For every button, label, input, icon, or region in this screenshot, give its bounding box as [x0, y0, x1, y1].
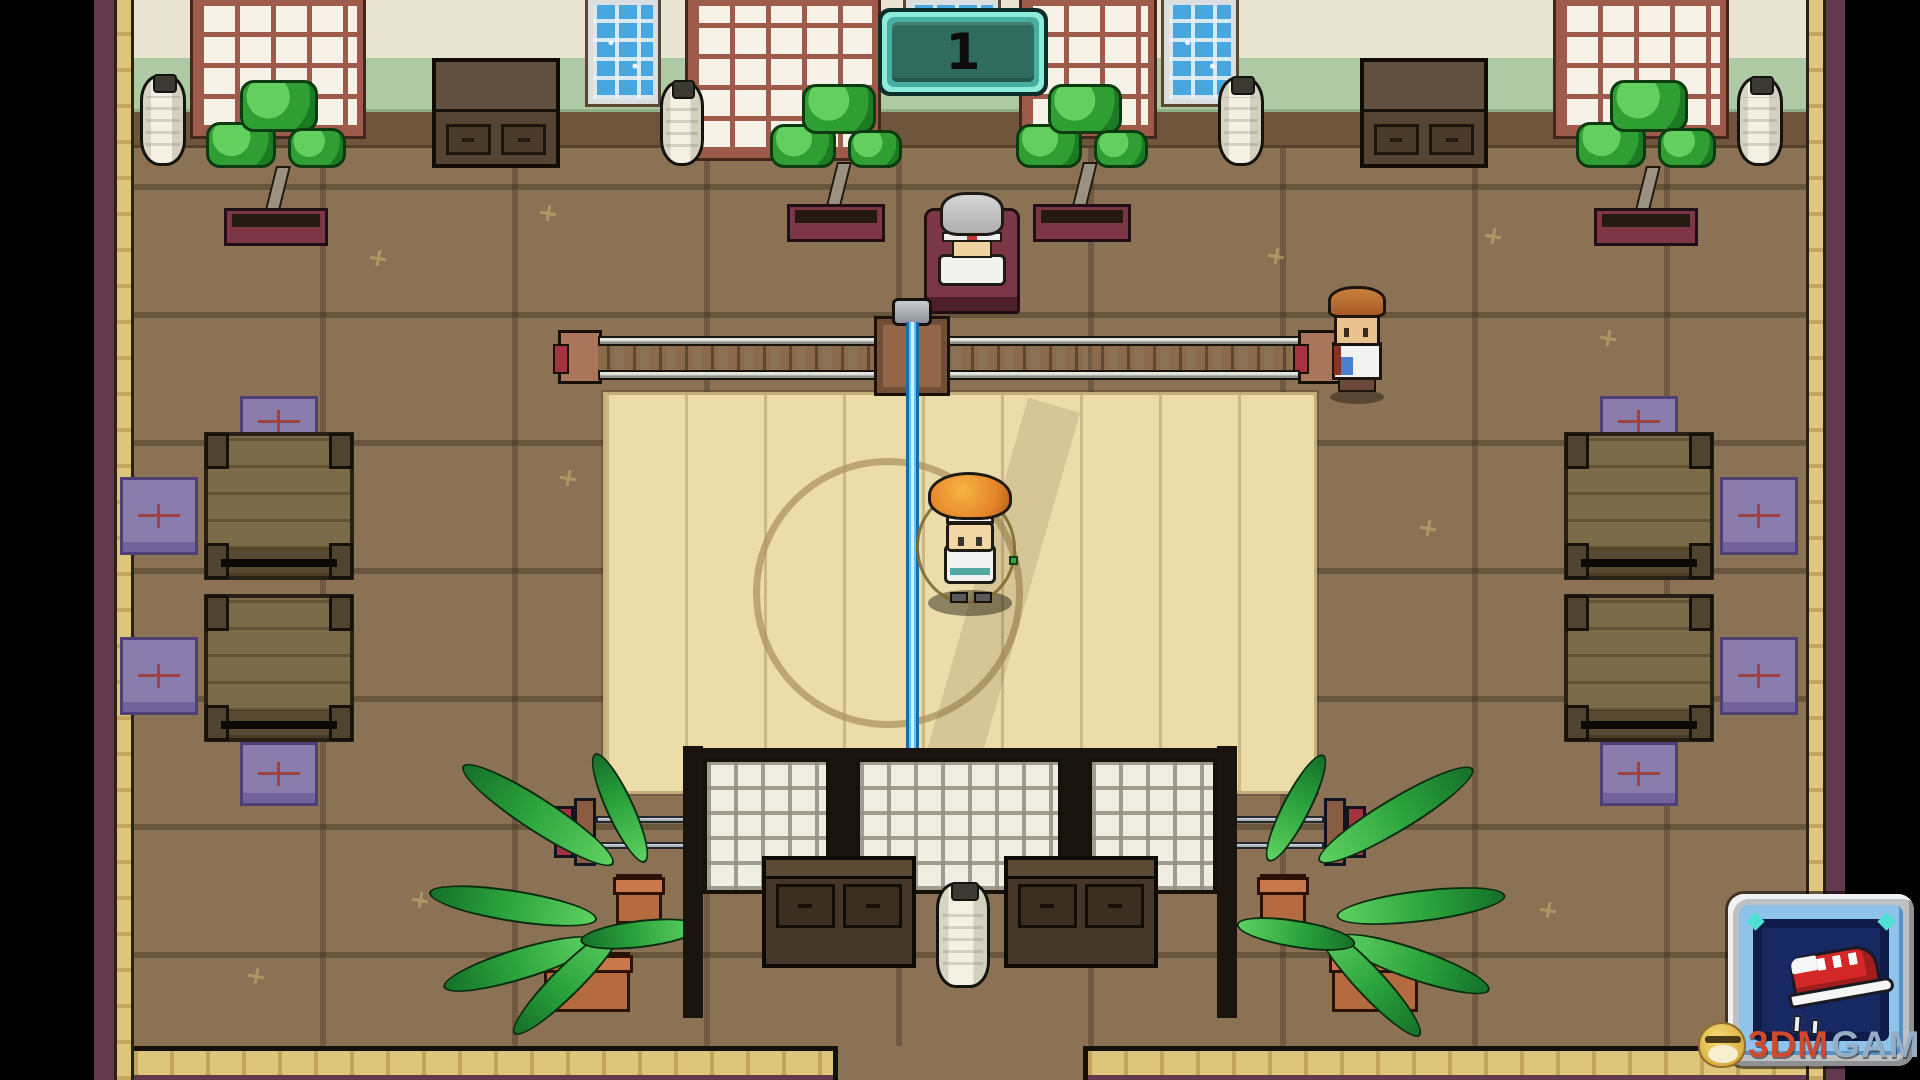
- floor-sparkle: [1539, 901, 1558, 920]
- floor-cushion: [120, 637, 198, 715]
- bonsai-foliage: [1658, 128, 1716, 168]
- bench-drawer: [1018, 884, 1076, 928]
- table-leg: [1565, 433, 1589, 469]
- floor-cushion: [120, 477, 198, 555]
- coach-hair: [940, 192, 1004, 236]
- standing-lantern: [936, 882, 990, 988]
- table-crossbar: [221, 559, 337, 567]
- plant-leaf: [1335, 878, 1508, 933]
- room-number-label: 1: [892, 22, 1034, 82]
- bonsai-pot: [1033, 204, 1131, 242]
- bonsai-tree: [1016, 84, 1148, 242]
- table-leg: [1689, 595, 1713, 631]
- table-leg: [329, 595, 353, 631]
- bonsai-foliage: [1610, 80, 1688, 132]
- paper-lantern: [1737, 76, 1783, 166]
- table-crossbar: [1581, 559, 1697, 567]
- floor-cushion: [1720, 637, 1798, 715]
- table-crossbar: [221, 721, 337, 729]
- room-number-sign: 1: [878, 8, 1048, 96]
- bonsai-foliage: [1048, 84, 1122, 134]
- floor-sparkle: [1267, 247, 1286, 266]
- floor-sparkle: [559, 469, 578, 488]
- bonsai-trunk: [1071, 162, 1098, 210]
- cabinet-drawer: [446, 124, 492, 155]
- potted-plant: [1216, 770, 1496, 1040]
- bench-drawer: [1085, 884, 1143, 928]
- low-table: [1564, 594, 1714, 742]
- bonsai-tree: [206, 80, 346, 246]
- left-wall-trim: [94, 0, 114, 1080]
- cabinet-drawer: [1429, 124, 1475, 155]
- table-leg: [1689, 433, 1713, 469]
- npc-shadow: [1330, 390, 1384, 404]
- bonsai-pot: [224, 208, 328, 246]
- glass-window: [588, 0, 658, 104]
- bonsai-soil: [1041, 210, 1123, 223]
- bonsai-soil: [795, 210, 877, 223]
- player-hair: [928, 472, 1012, 520]
- table-crossbar: [1581, 721, 1697, 729]
- table-leg: [329, 433, 353, 469]
- npc-hair: [1328, 286, 1386, 318]
- player-face: [946, 522, 994, 552]
- coach-gi: [938, 254, 1006, 286]
- low-table: [204, 594, 354, 742]
- coach-npc: [922, 192, 1022, 322]
- floor-cushion: [1720, 477, 1798, 555]
- floor-sparkle: [247, 967, 266, 986]
- bonsai-trunk: [1634, 166, 1661, 214]
- chick-mascot-icon: [1698, 1022, 1746, 1068]
- bench-drawer: [843, 884, 901, 928]
- storage-bench: [762, 856, 916, 968]
- bonsai-foliage: [240, 80, 318, 132]
- cabinet: [1360, 58, 1488, 168]
- bottom-doorway: [833, 1046, 1088, 1080]
- bonsai-foliage: [848, 130, 902, 168]
- cabinet-top: [436, 62, 556, 112]
- floor-cushion: [1600, 742, 1678, 806]
- table-leg: [205, 433, 229, 469]
- cabinet: [432, 58, 560, 168]
- npc-body: [1332, 342, 1382, 380]
- bonsai-trunk: [825, 162, 852, 210]
- paper-lantern: [140, 74, 186, 166]
- floor-sparkle: [1484, 227, 1503, 246]
- plant-leaf: [1311, 753, 1482, 877]
- floor-sparkle: [1599, 329, 1618, 348]
- screen-top-rail: [683, 748, 1237, 758]
- potted-plant: [440, 770, 720, 1040]
- bottom-baseboard: [134, 1051, 833, 1075]
- cabinet-top: [1364, 62, 1484, 112]
- bonsai-tree: [1576, 80, 1716, 246]
- table-leg: [1565, 595, 1589, 631]
- rail-endcap: [558, 330, 602, 384]
- floor-sparkle: [539, 204, 558, 223]
- cabinet-drawer: [1374, 124, 1420, 155]
- rope-handle: [1009, 556, 1018, 565]
- bench-drawer: [776, 884, 834, 928]
- coach-face: [952, 240, 992, 258]
- table-leg: [205, 595, 229, 631]
- plant-pot: [616, 874, 662, 924]
- player-shoe: [974, 592, 992, 603]
- paper-lantern: [660, 80, 704, 166]
- floor-cushion: [240, 742, 318, 806]
- watermark-text-red: 3DM: [1748, 1024, 1829, 1066]
- player-shoe: [950, 592, 968, 603]
- floor-sparkle: [1419, 519, 1438, 538]
- paper-lantern: [1218, 76, 1264, 166]
- bonsai-foliage: [1094, 130, 1148, 168]
- bonsai-foliage: [288, 128, 346, 168]
- floor-sparkle: [411, 891, 430, 910]
- plant-leaf: [427, 878, 600, 933]
- screen-post: [1217, 746, 1237, 1018]
- low-table: [204, 432, 354, 580]
- screen-post: [683, 746, 703, 1018]
- game-screen: 1: [0, 0, 1920, 1080]
- cabinet-drawer: [501, 124, 547, 155]
- bonsai-soil: [232, 214, 320, 227]
- bonsai-pot: [787, 204, 885, 242]
- bonsai-trunk: [264, 166, 291, 214]
- bonsai-pot: [1594, 208, 1698, 246]
- floor-sparkle: [369, 249, 388, 268]
- low-table: [1564, 432, 1714, 580]
- bonsai-tree: [770, 84, 902, 242]
- bonsai-soil: [1602, 214, 1690, 227]
- watermark-text-blue: GAME: [1831, 1024, 1920, 1066]
- watermark: 3DMGAME: [1698, 1022, 1920, 1068]
- storage-bench: [1004, 856, 1158, 968]
- standing-npc: [1320, 286, 1394, 404]
- player-character: [914, 466, 1026, 622]
- bonsai-foliage: [802, 84, 876, 134]
